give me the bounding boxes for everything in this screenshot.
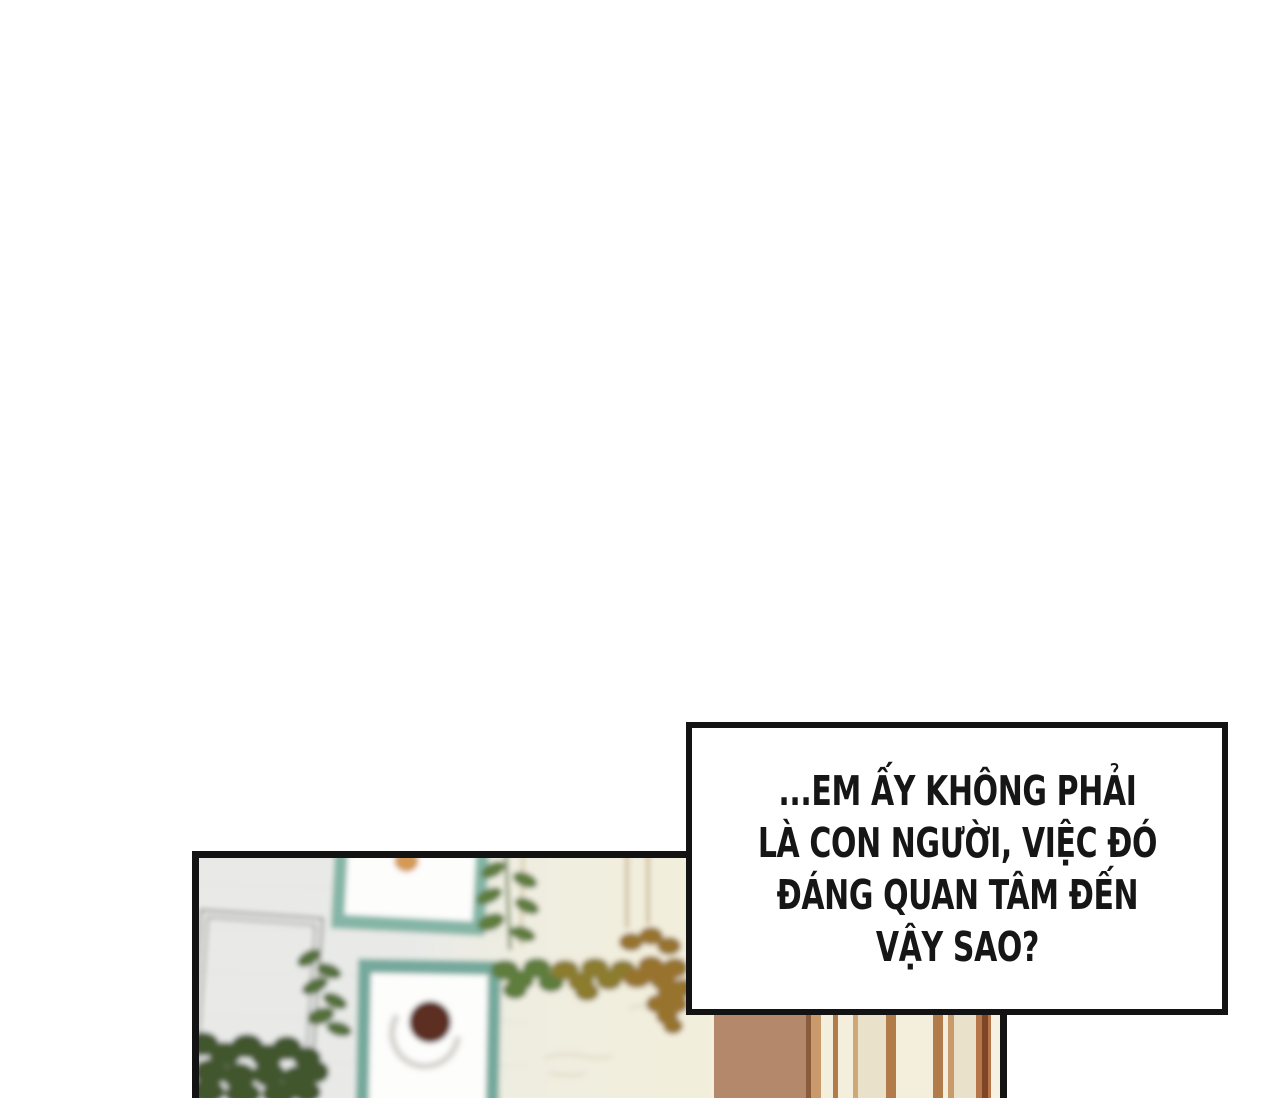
speech-text: ...EM ẤY KHÔNG PHẢI LÀ CON NGƯỜI, VIỆC Đ… [757, 765, 1156, 973]
framed-picture-top [331, 858, 490, 936]
speech-line: ...EM ẤY KHÔNG PHẢI [757, 765, 1156, 817]
speech-line: LÀ CON NGƯỜI, VIỆC ĐÓ [757, 817, 1156, 869]
speech-line: VẬY SAO? [757, 921, 1156, 973]
speech-bubble: ...EM ẤY KHÔNG PHẢI LÀ CON NGƯỜI, VIỆC Đ… [686, 722, 1228, 1015]
speech-line: ĐÁNG QUAN TÂM ĐẾN [757, 869, 1156, 921]
comic-page: ...EM ẤY KHÔNG PHẢI LÀ CON NGƯỜI, VIỆC Đ… [0, 0, 1280, 1098]
framed-picture-coffee [356, 959, 502, 1098]
